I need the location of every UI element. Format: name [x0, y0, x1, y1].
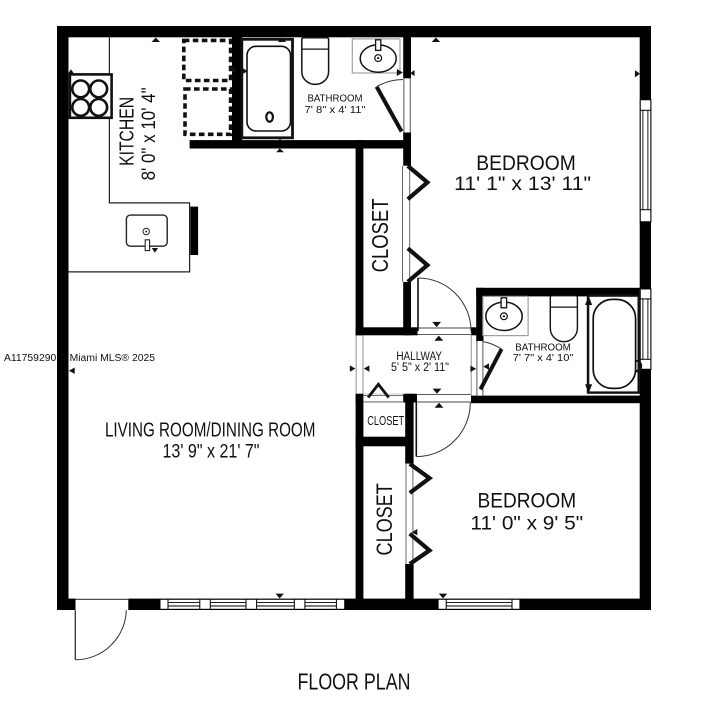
svg-text:CLOSET: CLOSET: [367, 198, 393, 272]
svg-text:A11759290 © Miami MLS® 2025: A11759290 © Miami MLS® 2025: [4, 353, 156, 364]
svg-text:BEDROOM: BEDROOM: [476, 151, 576, 175]
svg-text:CLOSET: CLOSET: [372, 483, 397, 555]
svg-text:KITCHEN: KITCHEN: [117, 97, 139, 166]
svg-text:CLOSET: CLOSET: [367, 413, 404, 428]
svg-text:11' 0" x 9' 5": 11' 0" x 9' 5": [470, 513, 583, 535]
svg-text:BEDROOM: BEDROOM: [478, 488, 577, 512]
svg-text:8' 0" x 10' 4": 8' 0" x 10' 4": [138, 87, 160, 180]
svg-text:5' 5" x 2' 11": 5' 5" x 2' 11": [391, 362, 449, 374]
svg-text:7' 7" x 4' 10": 7' 7" x 4' 10": [513, 353, 574, 364]
svg-text:LIVING ROOM/DINING ROOM: LIVING ROOM/DINING ROOM: [105, 419, 316, 442]
svg-text:BATHROOM: BATHROOM: [515, 343, 571, 354]
svg-text:11' 1" x 13' 11": 11' 1" x 13' 11": [454, 173, 591, 195]
svg-text:FLOOR PLAN: FLOOR PLAN: [298, 669, 411, 695]
svg-text:7' 8" x 4' 11": 7' 8" x 4' 11": [305, 105, 366, 116]
svg-text:13' 9" x 21' 7": 13' 9" x 21' 7": [163, 440, 260, 462]
svg-text:BATHROOM: BATHROOM: [308, 93, 363, 104]
